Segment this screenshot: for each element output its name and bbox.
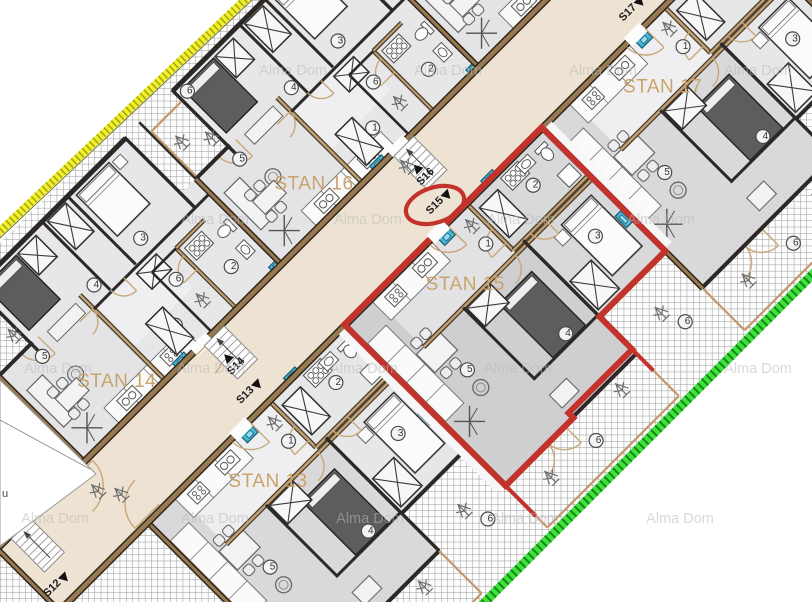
svg-text:Alma Dom: Alma Dom — [177, 361, 245, 377]
svg-text:Alma Dom: Alma Dom — [330, 361, 398, 377]
svg-text:Alma Dom: Alma Dom — [181, 511, 249, 527]
svg-text:Alma Dom: Alma Dom — [569, 63, 637, 79]
svg-text:3: 3 — [595, 231, 601, 242]
svg-text:Alma Dom: Alma Dom — [334, 212, 402, 228]
svg-text:Alma Dom: Alma Dom — [724, 361, 792, 377]
svg-text:4: 4 — [565, 328, 571, 339]
svg-text:5: 5 — [239, 154, 245, 165]
svg-text:5: 5 — [467, 364, 473, 375]
svg-text:4: 4 — [368, 525, 374, 536]
svg-text:Alma Dom: Alma Dom — [259, 63, 327, 79]
svg-text:STAN 13: STAN 13 — [228, 471, 307, 492]
svg-text:4: 4 — [94, 279, 100, 290]
svg-text:5: 5 — [270, 562, 276, 573]
svg-text:6: 6 — [373, 76, 379, 87]
svg-text:3: 3 — [398, 428, 404, 439]
svg-text:3: 3 — [792, 33, 798, 44]
svg-text:3: 3 — [338, 35, 344, 46]
svg-text:STAN 17: STAN 17 — [623, 77, 702, 98]
svg-text:Alma Dom: Alma Dom — [414, 63, 482, 79]
svg-text:u: u — [2, 488, 8, 500]
svg-text:4: 4 — [291, 82, 297, 93]
svg-text:6: 6 — [176, 274, 182, 285]
svg-text:1: 1 — [683, 41, 689, 52]
svg-text:2: 2 — [533, 180, 539, 191]
svg-text:Alma Dom: Alma Dom — [487, 212, 555, 228]
svg-text:5: 5 — [664, 167, 670, 178]
svg-text:3: 3 — [140, 233, 146, 244]
svg-text:2: 2 — [231, 261, 237, 272]
svg-text:Alma Dom: Alma Dom — [491, 511, 559, 527]
svg-text:Alma Dom: Alma Dom — [21, 511, 89, 527]
svg-text:Alma Dom: Alma Dom — [484, 361, 552, 377]
svg-text:Alma Dom: Alma Dom — [646, 511, 714, 527]
svg-text:1: 1 — [372, 122, 378, 133]
svg-text:Alma Dom: Alma Dom — [627, 212, 695, 228]
svg-text:STAN 15: STAN 15 — [426, 274, 505, 295]
svg-text:6: 6 — [596, 435, 602, 446]
svg-text:Alma Dom: Alma Dom — [24, 361, 92, 377]
svg-text:6: 6 — [793, 238, 799, 249]
svg-text:2: 2 — [335, 377, 341, 388]
svg-text:4: 4 — [763, 131, 769, 142]
svg-text:STAN 16: STAN 16 — [274, 174, 353, 195]
svg-text:6: 6 — [187, 86, 193, 97]
svg-text:Alma Dom: Alma Dom — [181, 212, 249, 228]
svg-text:6: 6 — [685, 316, 691, 327]
svg-text:1: 1 — [288, 436, 294, 447]
svg-text:1: 1 — [485, 238, 491, 249]
svg-text:Alma Dom: Alma Dom — [724, 63, 792, 79]
svg-text:Alma Dom: Alma Dom — [336, 511, 404, 527]
